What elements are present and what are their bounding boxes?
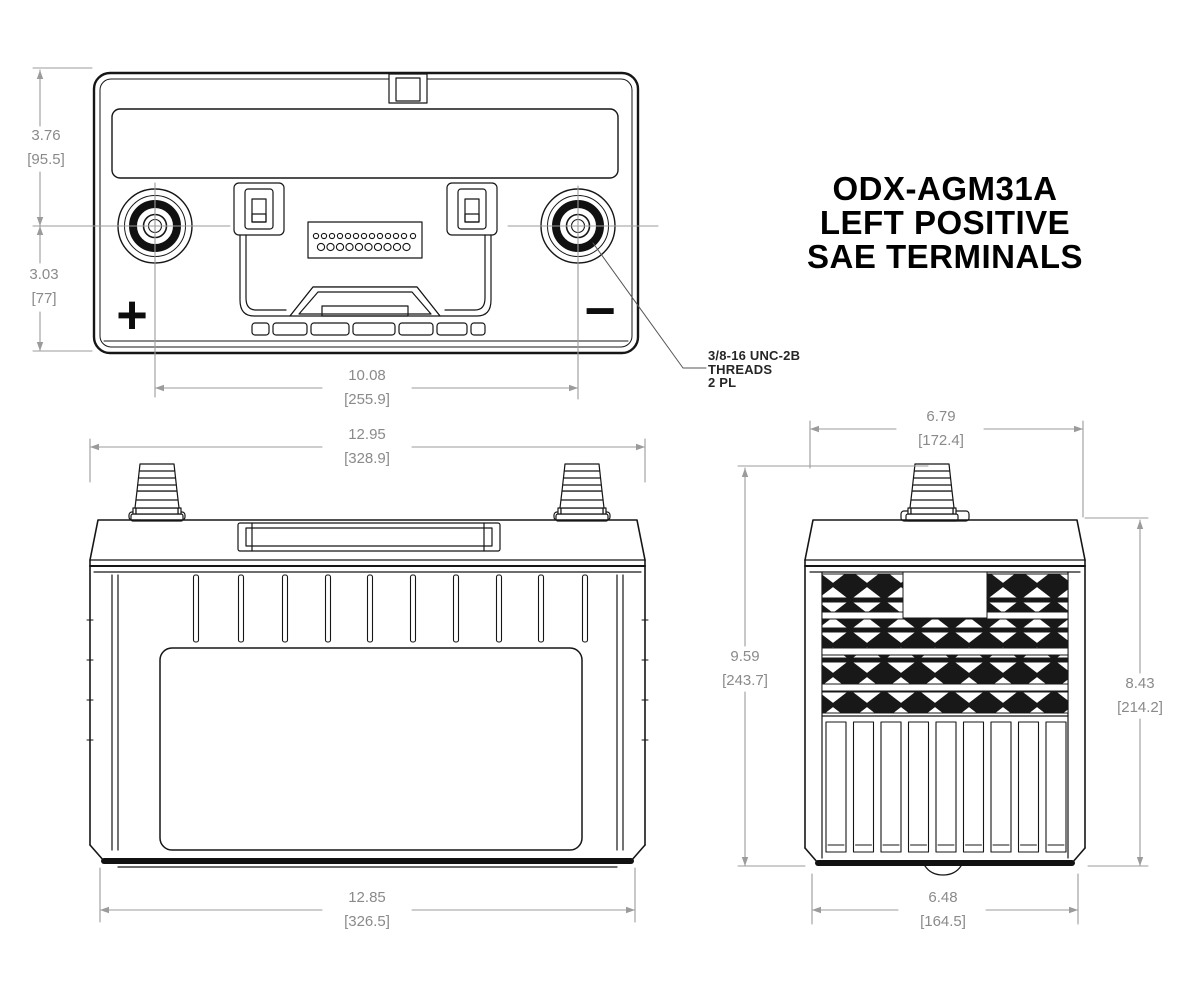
left-latch [234,183,284,235]
negative-terminal-post [556,464,608,521]
dim-side-height-case: 8.43 [214.2] [1095,675,1185,717]
dim-side-height-total: 9.59 [243.7] [700,648,790,690]
side-view [805,464,1085,875]
dim-top-height-lower: 3.03 [77] [14,266,74,308]
battery-drawing-svg [0,0,1200,1000]
side-ribs [826,722,1066,852]
vent-plate [308,222,422,258]
mesh-pattern [822,572,1068,713]
dim-side-width-top: 6.79 [172.4] [896,408,986,450]
title-terminal-type: SAE TERMINALS [780,240,1110,274]
title-orientation: LEFT POSITIVE [780,206,1110,240]
thread-callout: 3/8-16 UNC-2B THREADS 2 PL [708,349,800,390]
top-tab [389,74,427,103]
side-terminal-post [906,464,958,521]
dim-terminal-spacing: 10.08 [255.9] [322,367,412,409]
front-ribs [194,575,588,642]
top-label-area [112,109,618,178]
dim-front-width-top: 12.95 [328.9] [322,426,412,468]
front-label-recess [160,648,582,850]
dim-front-width-bottom: 12.85 [326.5] [322,889,412,931]
positive-symbol: + [102,288,162,342]
carry-handle [290,287,440,316]
positive-terminal-post [131,464,183,521]
lid-handle-slot [238,523,500,551]
dim-top-height-upper: 3.76 [95.5] [14,127,78,169]
handle-recess [234,183,497,335]
negative-symbol: − [570,284,630,338]
drawing-title: ODX-AGM31A LEFT POSITIVE SAE TERMINALS [780,172,1110,274]
side-label-area [903,572,987,618]
drawing-sheet: ODX-AGM31A LEFT POSITIVE SAE TERMINALS 3… [0,0,1200,1000]
top-view [94,73,638,353]
recess-pads [252,323,485,335]
dim-side-width-bottom: 6.48 [164.5] [898,889,988,931]
right-latch [447,183,497,235]
title-model: ODX-AGM31A [780,172,1110,206]
front-view [87,464,648,867]
